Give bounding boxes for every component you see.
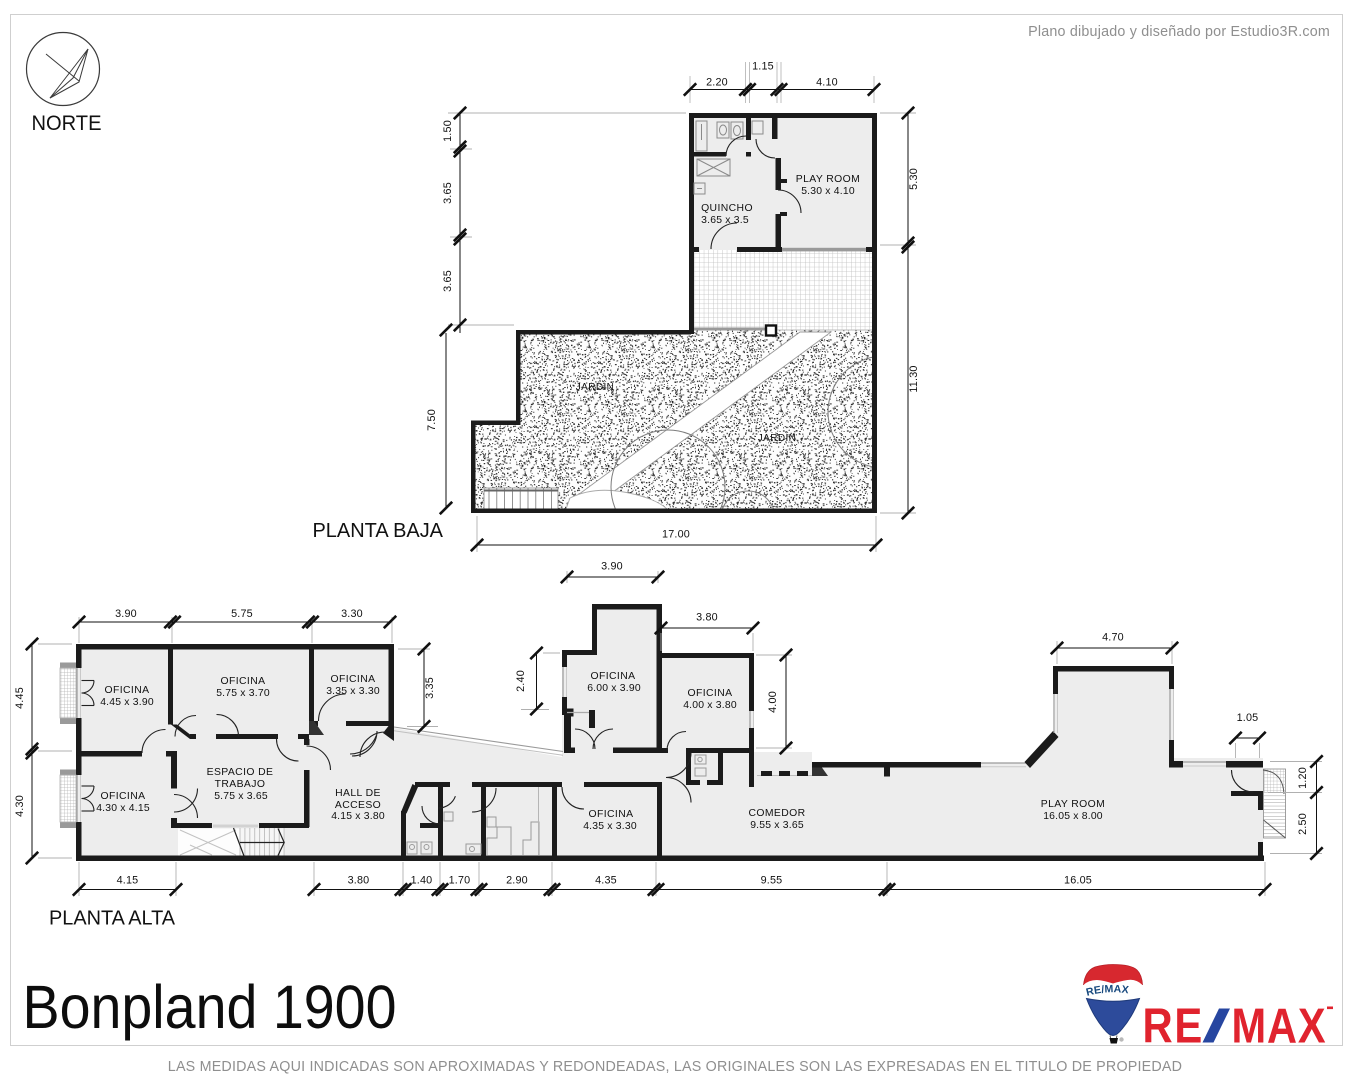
svg-text:3.35: 3.35 — [424, 677, 436, 699]
svg-text:4.00 x 3.80: 4.00 x 3.80 — [683, 700, 737, 711]
svg-text:5.75: 5.75 — [231, 608, 253, 620]
svg-text:COMEDOR: COMEDOR — [748, 808, 805, 819]
svg-text:OFICINA: OFICINA — [331, 674, 376, 685]
svg-text:17.00: 17.00 — [662, 529, 690, 541]
svg-text:OFICINA: OFICINA — [221, 676, 266, 687]
svg-text:2.20: 2.20 — [706, 77, 728, 89]
svg-text:TRABAJO: TRABAJO — [215, 779, 266, 790]
svg-text:11.30: 11.30 — [908, 365, 920, 392]
svg-text:QUINCHO: QUINCHO — [701, 203, 753, 214]
svg-text:4.30: 4.30 — [14, 795, 26, 817]
svg-text:4.15: 4.15 — [117, 875, 139, 887]
svg-text:3.90: 3.90 — [115, 608, 137, 620]
svg-text:1.20: 1.20 — [1297, 767, 1309, 789]
svg-text:HALL DE: HALL DE — [335, 788, 381, 799]
svg-text:JARDÍN: JARDÍN — [576, 380, 615, 393]
svg-text:1.15: 1.15 — [752, 61, 774, 73]
svg-text:OFICINA: OFICINA — [101, 791, 146, 802]
svg-text:JARDÍN: JARDÍN — [758, 431, 797, 444]
svg-text:4.35: 4.35 — [595, 875, 617, 887]
svg-text:5.75 x 3.65: 5.75 x 3.65 — [214, 791, 268, 802]
svg-text:ACCESO: ACCESO — [335, 800, 381, 811]
svg-text:4.45 x 3.90: 4.45 x 3.90 — [100, 697, 154, 708]
svg-text:OFICINA: OFICINA — [589, 809, 634, 820]
svg-text:7.50: 7.50 — [426, 409, 438, 431]
svg-text:3.80: 3.80 — [696, 612, 718, 624]
svg-text:PLANTA BAJA: PLANTA BAJA — [313, 520, 444, 542]
svg-text:2.90: 2.90 — [506, 875, 528, 887]
svg-text:LAS MEDIDAS AQUI INDICADAS SON: LAS MEDIDAS AQUI INDICADAS SON APROXIMAD… — [168, 1059, 1182, 1075]
svg-text:NORTE: NORTE — [32, 112, 102, 135]
svg-text:3.65 x 3.5: 3.65 x 3.5 — [701, 215, 749, 226]
svg-text:3.35 x 3.30: 3.35 x 3.30 — [326, 686, 380, 697]
svg-text:3.30: 3.30 — [341, 608, 363, 620]
svg-text:Bonpland 1900: Bonpland 1900 — [23, 973, 397, 1041]
svg-text:4.15 x 3.80: 4.15 x 3.80 — [331, 811, 385, 822]
svg-text:OFICINA: OFICINA — [688, 688, 733, 699]
svg-text:1.05: 1.05 — [1237, 712, 1259, 724]
svg-text:4.35 x 3.30: 4.35 x 3.30 — [583, 821, 637, 832]
svg-text:3.65: 3.65 — [442, 270, 454, 292]
svg-text:PLAY ROOM: PLAY ROOM — [796, 174, 860, 185]
svg-text:RE: RE — [1143, 998, 1204, 1053]
svg-text:5.30 x 4.10: 5.30 x 4.10 — [801, 186, 855, 197]
svg-text:4.70: 4.70 — [1102, 632, 1124, 644]
svg-text:PLANTA ALTA: PLANTA ALTA — [49, 908, 175, 930]
svg-text:2.50: 2.50 — [1297, 813, 1309, 835]
svg-text:MAX: MAX — [1232, 998, 1327, 1053]
svg-text:5.30: 5.30 — [908, 168, 920, 190]
svg-text:16.05 x 8.00: 16.05 x 8.00 — [1043, 811, 1103, 822]
svg-text:2.40: 2.40 — [515, 670, 527, 692]
svg-text:ESPACIO DE: ESPACIO DE — [207, 767, 274, 778]
svg-text:4.30 x 4.15: 4.30 x 4.15 — [96, 803, 150, 814]
svg-text:9.55: 9.55 — [761, 875, 783, 887]
svg-text:4.00: 4.00 — [767, 691, 779, 713]
svg-text:5.75 x 3.70: 5.75 x 3.70 — [216, 688, 270, 699]
svg-text:1.70: 1.70 — [449, 875, 471, 887]
svg-text:9.55 x 3.65: 9.55 x 3.65 — [750, 820, 804, 831]
svg-text:4.45: 4.45 — [14, 687, 26, 709]
svg-text:1.40: 1.40 — [411, 875, 433, 887]
svg-text:6.00 x 3.90: 6.00 x 3.90 — [587, 683, 641, 694]
svg-text:1.50: 1.50 — [442, 120, 454, 142]
svg-text:3.90: 3.90 — [601, 561, 623, 573]
svg-text:OFICINA: OFICINA — [105, 685, 150, 696]
svg-text:Plano dibujado y diseñado por: Plano dibujado y diseñado por Estudio3R.… — [1028, 24, 1330, 40]
svg-text:PLAY ROOM: PLAY ROOM — [1041, 799, 1105, 810]
svg-text:3.65: 3.65 — [442, 182, 454, 204]
svg-text:OFICINA: OFICINA — [591, 671, 636, 682]
svg-text:16.05: 16.05 — [1064, 875, 1092, 887]
svg-text:3.80: 3.80 — [348, 875, 370, 887]
svg-text:4.10: 4.10 — [816, 77, 838, 89]
